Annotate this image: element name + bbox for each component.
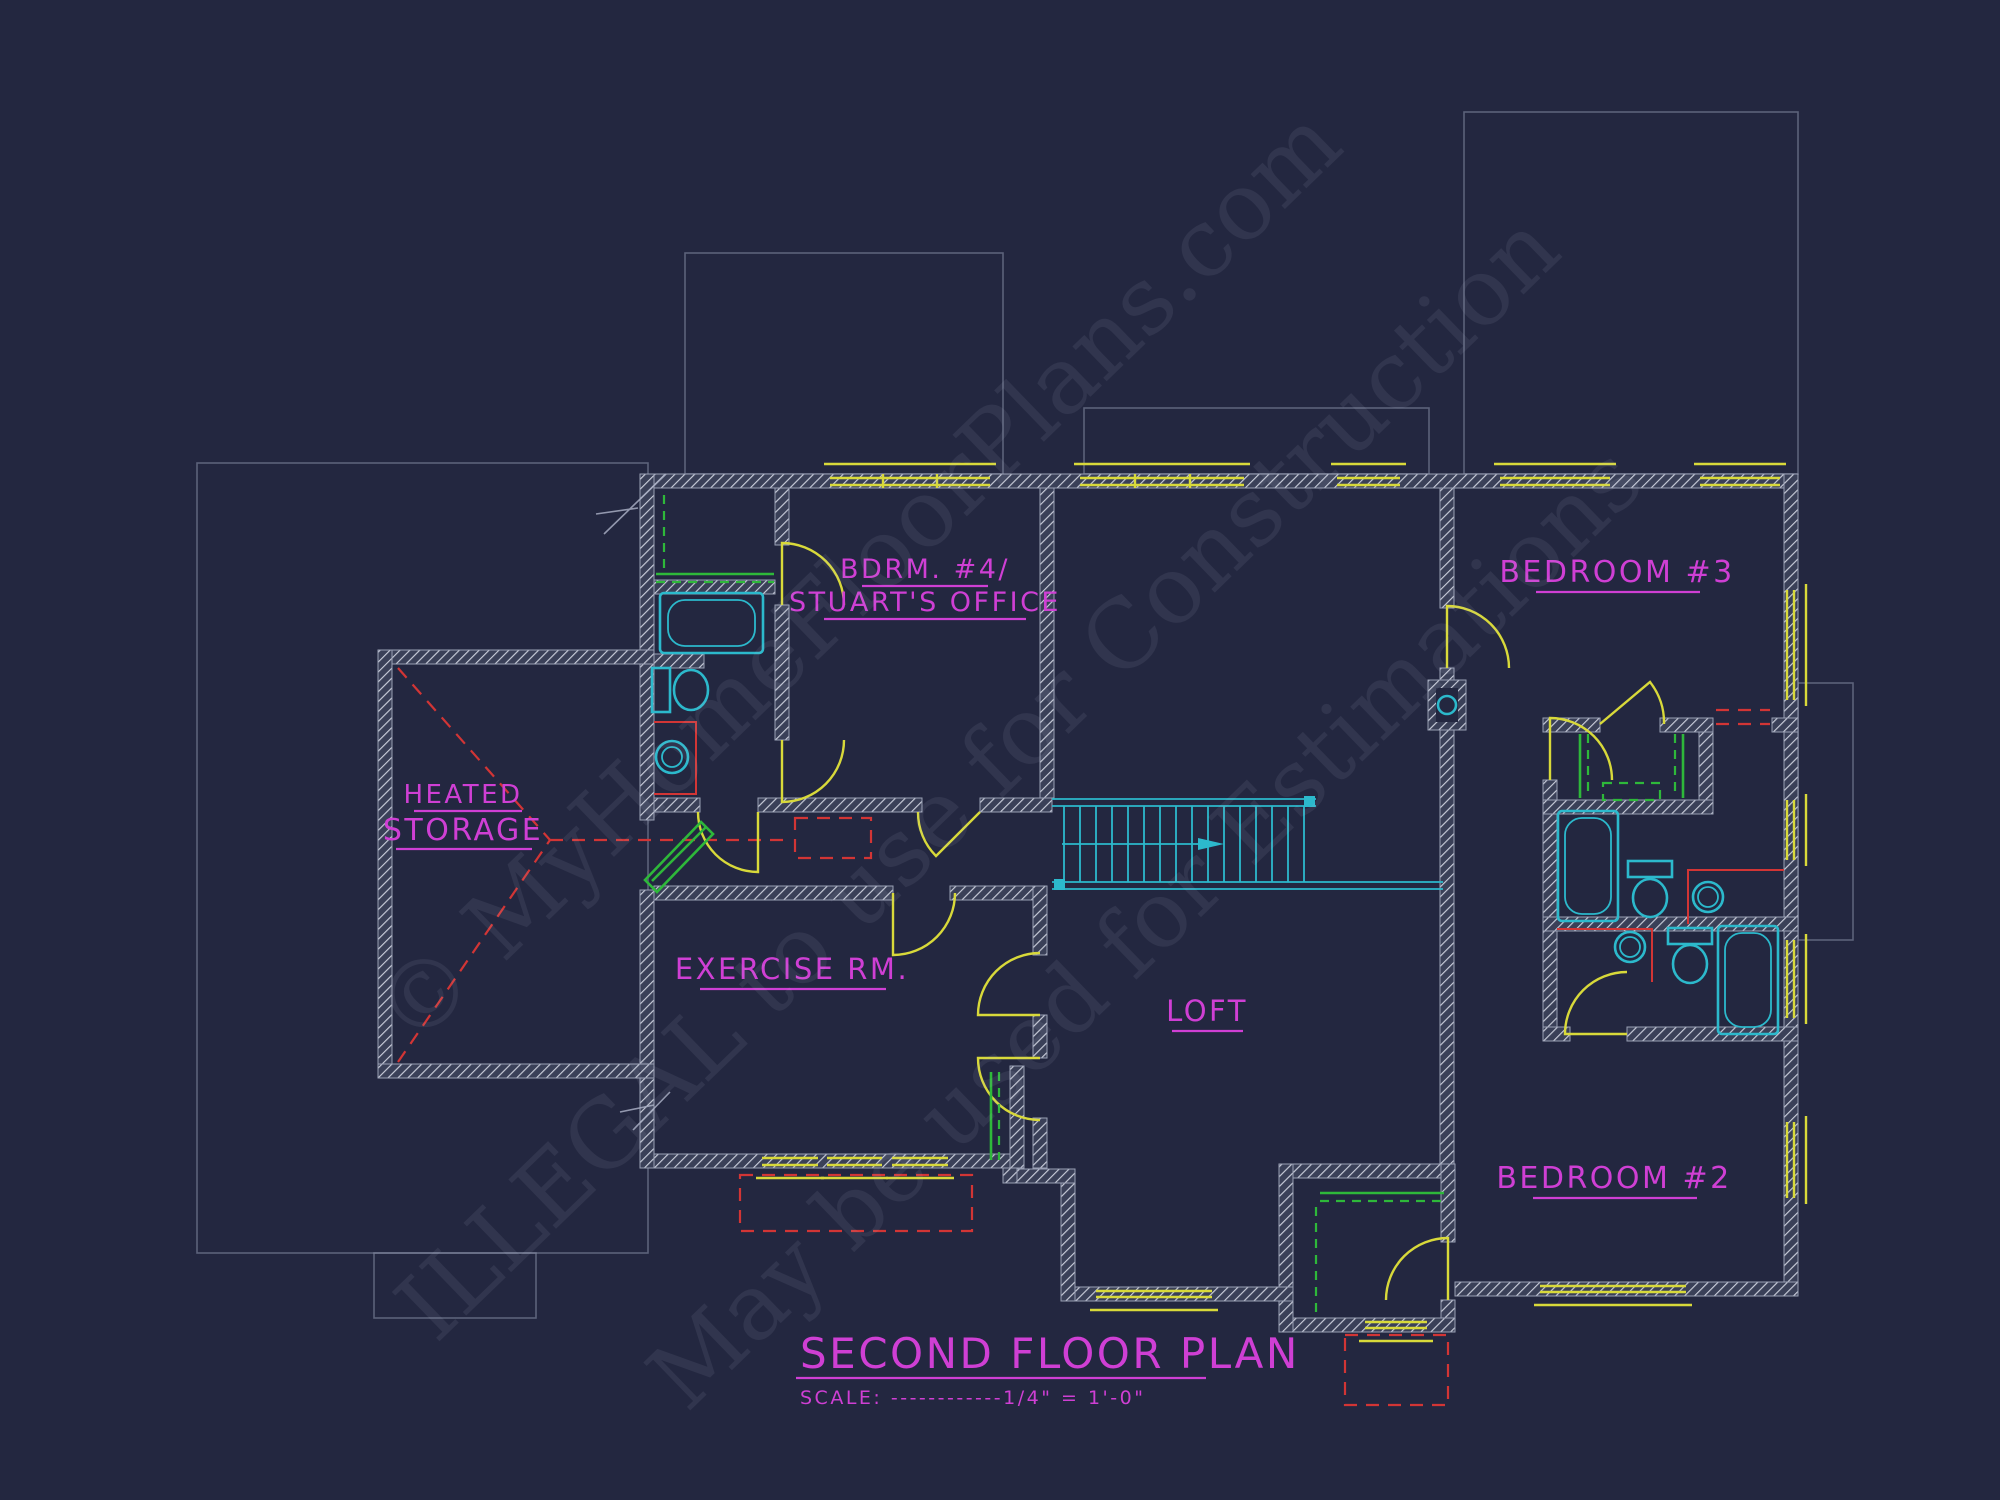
label-storage-line1: HEATED xyxy=(403,780,522,810)
label-loft: LOFT xyxy=(1166,994,1248,1028)
label-bedroom2: BEDROOM #2 xyxy=(1496,1161,1731,1196)
cad-canvas: BDRM. #4/ STUART'S OFFICE BEDROOM #3 HEA… xyxy=(0,0,2000,1500)
floor-plan-svg: BDRM. #4/ STUART'S OFFICE BEDROOM #3 HEA… xyxy=(0,0,2000,1500)
drawing-title: SECOND FLOOR PLAN xyxy=(800,1329,1300,1378)
drawing-scale: SCALE: ------------1/4" = 1'-0" xyxy=(800,1387,1145,1409)
